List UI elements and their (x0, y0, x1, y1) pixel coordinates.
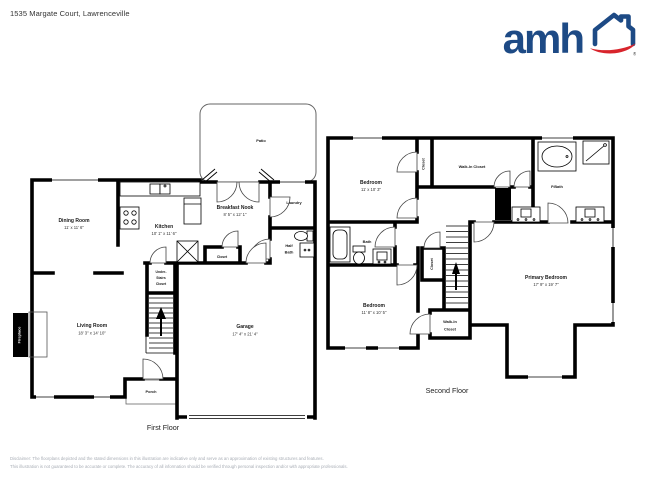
kitchen-sink (150, 184, 160, 194)
porch-label: Porch (145, 389, 157, 394)
second-floor-walls (328, 138, 613, 377)
walk-in-closet-top-door (494, 171, 510, 187)
under-stairs-label-3: Closet (156, 282, 167, 286)
garage-entry-door (246, 243, 266, 263)
first-floor-plan: Fireplace (13, 104, 316, 432)
bedroom1-label: Bedroom (360, 180, 383, 186)
bath-label: Bath (363, 239, 372, 244)
first-floor-doors (143, 182, 290, 379)
stove (120, 207, 139, 229)
half-bath-label-2: Bath (285, 250, 294, 255)
primary-bedroom-dims: 17' 9" x 19' 7" (533, 282, 559, 287)
bedroom2-door (397, 265, 417, 285)
hall-closet-label: Closet (217, 255, 228, 259)
walk-in-closet-top-label: Walk-In Closet (459, 164, 486, 169)
pbath-label: P.Bath (551, 184, 563, 189)
second-floor-title: Second Floor (426, 386, 469, 395)
first-floor-title: First Floor (147, 423, 180, 432)
walk-in-closet-bottom-label-1: Walk-In (443, 319, 457, 324)
bedroom2-label: Bedroom (363, 303, 386, 309)
bath-door (375, 227, 395, 247)
floorplan-page: 1535 Margate Court, Lawrenceville amh ® … (0, 0, 650, 488)
breakfast-nook-dims: 8' 5" x 12' 1" (224, 212, 247, 217)
sink (300, 243, 314, 257)
disclaimer-line-1: Disclaimer: The floorplans depicted and … (10, 457, 324, 461)
closet-top-label: Closet (422, 157, 426, 169)
closet-mid-door (424, 232, 440, 248)
second-floor-plan: Bedroom 11' x 10' 3" Closet Walk-In Clos… (328, 136, 616, 396)
closet-mid-label: Closet (430, 257, 434, 269)
bedroom1-closet-door (397, 152, 417, 172)
pbath-door (548, 203, 568, 223)
under-stairs-label-2: Stairs (156, 276, 166, 280)
stairs-up-arrow (452, 262, 460, 274)
garage-dims: 17' 4" x 21' 4" (232, 332, 258, 337)
dining-room-dims: 11' x 11' 6" (64, 225, 84, 230)
linen-closet-door (514, 171, 530, 187)
walk-in-closet-bottom-door (410, 314, 430, 334)
second-floor-stairs (446, 226, 468, 303)
refrigerator (184, 198, 201, 224)
dining-room-label: Dining Room (58, 218, 90, 224)
front-door (143, 359, 163, 379)
primary-bedroom-label: Primary Bedroom (525, 275, 568, 281)
kitchen-dims: 10' 1" x 11' 6" (152, 231, 177, 236)
bedroom2-dims: 11' 8" x 10' 5" (362, 310, 387, 315)
primary-bedroom-door (474, 222, 494, 242)
under-stairs-label-1: Under- (156, 270, 167, 274)
floorplan-canvas: Fireplace (0, 0, 650, 488)
kitchen-label: Kitchen (155, 224, 173, 230)
breakfast-nook-label: Breakfast Nook (217, 205, 254, 211)
first-floor-stairs (146, 298, 175, 353)
under-stairs-closet-door (150, 247, 166, 263)
patio-door-left (217, 182, 237, 202)
toilet-tank (353, 246, 365, 252)
half-bath-label-1: Half (285, 243, 293, 248)
toilet (295, 232, 308, 241)
laundry-label: Laundry (286, 200, 302, 205)
living-room-label: Living Room (77, 323, 108, 329)
living-room-dims: 18' 3" x 14' 10" (78, 331, 106, 336)
patio-label: Patio (256, 138, 266, 143)
disclaimer-line-2: This illustration is not guaranteed to b… (10, 465, 348, 469)
patio-outline (200, 104, 316, 182)
half-bath-fixtures (295, 231, 315, 257)
hall-closet-door (222, 231, 238, 247)
bedroom1-dims: 11' x 10' 3" (361, 187, 382, 192)
patio-door-right (239, 182, 259, 202)
wall-block (495, 188, 511, 220)
bedroom1-door (397, 198, 417, 218)
walk-in-closet-bottom-label-2: Closet (444, 327, 457, 332)
garage-label: Garage (236, 324, 253, 330)
toilet (354, 252, 365, 264)
fireplace-label: Fireplace (18, 327, 22, 344)
